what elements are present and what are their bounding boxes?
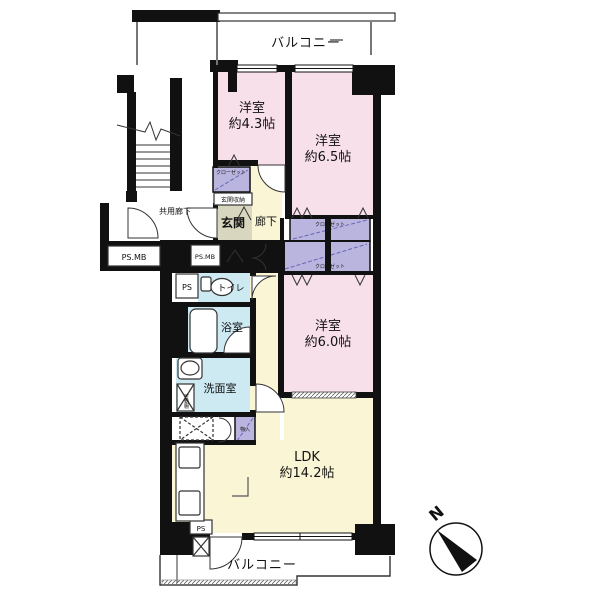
label-room60-size: 約6.0帖 xyxy=(305,335,352,350)
label-ps-lower: PS xyxy=(197,525,206,533)
label-room43-size: 約4.3帖 xyxy=(229,117,276,132)
label-ps-upper: PS xyxy=(182,283,192,292)
label-entrance: 玄関 xyxy=(221,215,245,230)
label-room65-name: 洋室 xyxy=(315,133,341,149)
compass: N xyxy=(425,502,482,575)
label-balcony-bottom: バルコニー xyxy=(227,558,297,573)
compass-north-label: N xyxy=(425,502,447,525)
label-movable-shelf: 可動棚 xyxy=(183,394,189,410)
door-corridor-left xyxy=(128,208,158,238)
label-ps-mb-right: PS.MB xyxy=(195,253,215,261)
label-ldk-name: LDK xyxy=(294,450,320,465)
basin-bowl xyxy=(181,361,199,375)
kitchen-sink xyxy=(179,447,200,468)
door-storage-lower-1 xyxy=(219,418,231,430)
toilet-tank xyxy=(201,277,211,291)
label-washroom: 洗面室 xyxy=(204,381,237,395)
label-entrance-storage: 玄関収納 xyxy=(221,196,245,204)
floorplan-svg: N バルコニー バルコニー 共用廊下 洋室 約4.3帖 洋室 約6.5帖 洋室 … xyxy=(0,0,600,600)
ldk-floor-upper-right xyxy=(284,398,373,443)
label-common-corridor: 共用廊下 xyxy=(159,206,191,216)
label-room65-size: 約6.5帖 xyxy=(305,150,352,165)
label-bathroom: 浴室 xyxy=(221,320,243,334)
floorplan-page: N バルコニー バルコニー 共用廊下 洋室 約4.3帖 洋室 約6.5帖 洋室 … xyxy=(0,0,600,600)
sliding-opening-room60-ldk xyxy=(292,392,356,398)
label-hallway: 廊下 xyxy=(255,214,277,228)
label-storage-hall: 物入 xyxy=(231,254,241,261)
label-closet-center-bottom: クローゼット xyxy=(315,263,345,270)
label-room60-name: 洋室 xyxy=(315,318,341,334)
bathtub xyxy=(190,309,217,353)
label-ldk-size: 約14.2帖 xyxy=(280,466,335,481)
label-closet-room43: クローゼット xyxy=(216,169,246,176)
door-entrance-front xyxy=(187,208,217,238)
label-balcony-top: バルコニー xyxy=(271,36,341,51)
label-closet-center-top: クローゼット xyxy=(315,221,345,228)
label-room43-name: 洋室 xyxy=(239,100,265,116)
label-toilet: トイレ xyxy=(217,284,244,294)
label-storage-lower: 物入 xyxy=(240,426,250,433)
kitchen-stove xyxy=(179,491,200,515)
label-ps-mb-left: PS.MB xyxy=(122,253,147,262)
